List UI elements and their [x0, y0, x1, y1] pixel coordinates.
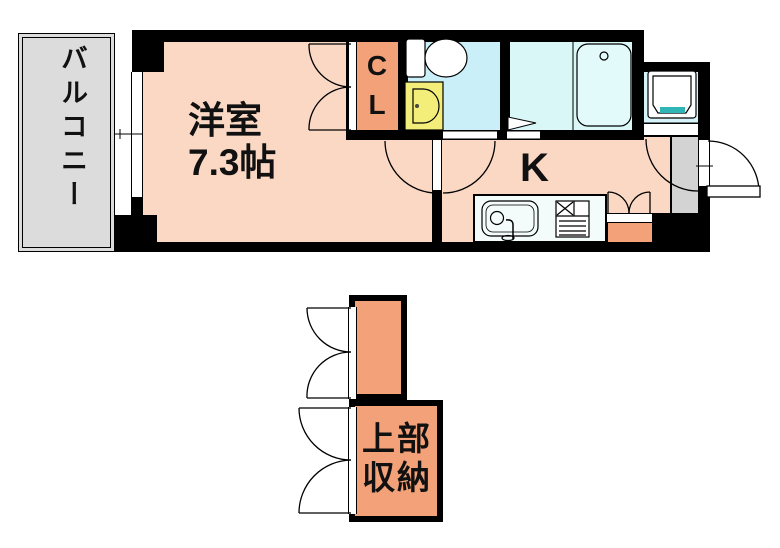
wall-band-c: [540, 130, 644, 140]
entry-step-line: [670, 137, 672, 213]
upper-storage-label: 上部 収納: [362, 419, 432, 497]
room-kitchen-door-panel: [432, 140, 442, 190]
cabinet-column-fill: [355, 301, 401, 394]
toilet-doorway: [443, 130, 497, 140]
entry-door-swing-outer-icon: [708, 141, 759, 192]
wall-top: [132, 30, 644, 42]
small-storage-door-panel: [603, 213, 652, 223]
wall-corridor: [432, 190, 442, 242]
balcony-label: バルコニー: [40, 44, 92, 249]
wall-bottom: [115, 242, 710, 252]
entry-area: [672, 137, 698, 213]
wall-closet-right: [398, 42, 408, 130]
wall-left-lower: [131, 197, 143, 217]
laundry-threshold: [644, 123, 698, 135]
wall-entry-top: [644, 62, 710, 72]
wall-bath-right: [632, 30, 644, 137]
wall-corner-bottomright: [652, 213, 710, 252]
entry-door-leaf: [707, 186, 760, 197]
upper-storage-door-panel: [348, 407, 357, 514]
wall-band-a: [346, 130, 443, 140]
bath-doorway: [507, 130, 540, 140]
small-storage-left-edge: [603, 223, 608, 248]
closet-label: C L: [356, 46, 398, 124]
wall-topleft-block: [132, 30, 164, 72]
room-label: 洋室 7.3帖: [188, 100, 276, 184]
bathroom-area: [510, 42, 632, 130]
laundry-area: [644, 72, 698, 123]
toilet-room-area: [408, 42, 500, 130]
upper-storage-door-swing-icon: [299, 408, 351, 513]
laundry-bottom-line: [644, 135, 698, 137]
wall-toilet-right: [500, 42, 510, 130]
floorplan-canvas: バルコニー 洋室 7.3帖 C L K 上部 収納: [0, 0, 780, 548]
balcony-window: [131, 72, 143, 197]
cabinet-door-panel: [348, 307, 357, 399]
cabinet-door-swing-icon: [307, 308, 351, 398]
entry-doorway: [698, 140, 710, 186]
kitchen-label: K: [520, 146, 549, 191]
wall-band-b: [497, 130, 507, 140]
